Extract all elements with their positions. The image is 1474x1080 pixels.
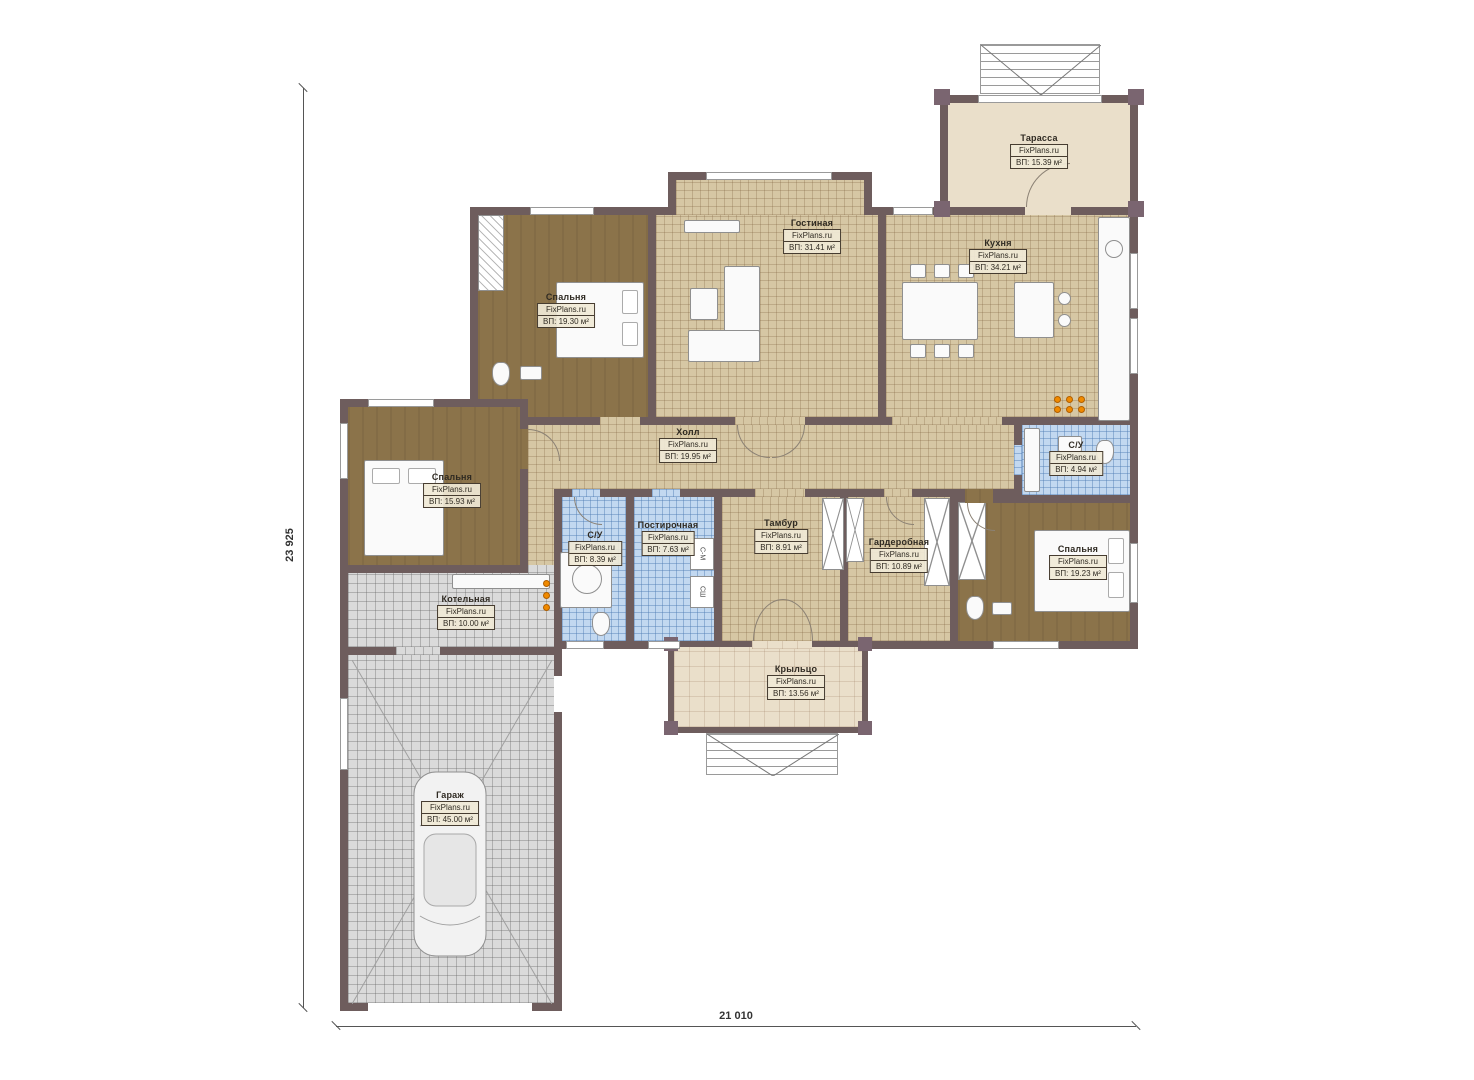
room-name: Гараж xyxy=(421,790,479,800)
room-label-terrace: Тарасса FixPlans.ru ВП: 15.39 м² xyxy=(1010,133,1068,170)
closet xyxy=(846,498,864,562)
window xyxy=(978,95,1102,103)
room-area: ВП: 8.91 м² xyxy=(755,542,807,553)
room-area: ВП: 19.23 м² xyxy=(1050,568,1106,579)
watermark: FixPlans.ru xyxy=(424,484,480,496)
room-hall xyxy=(520,417,1022,497)
window xyxy=(1130,253,1138,309)
watermark: FixPlans.ru xyxy=(1050,556,1106,568)
boiler-indicator xyxy=(543,592,550,599)
terrace-column xyxy=(934,89,950,105)
room-name: С/У xyxy=(568,530,622,540)
room-name: Спальня xyxy=(537,292,595,302)
laundry-door-opening xyxy=(652,489,680,497)
sink xyxy=(992,602,1012,615)
room-label-laundry: Постирочная FixPlans.ru ВП: 7.63 м² xyxy=(638,520,699,557)
watermark: FixPlans.ru xyxy=(569,542,621,554)
wardrobe-cabinet xyxy=(478,215,504,291)
room-name: Постирочная xyxy=(638,520,699,530)
stool xyxy=(1058,314,1071,327)
porch-column xyxy=(664,721,678,735)
closet xyxy=(822,498,844,570)
window xyxy=(648,641,680,649)
stairs-arrow xyxy=(981,45,1101,95)
room-area: ВП: 13.56 м² xyxy=(768,688,824,699)
room-area: ВП: 19.95 м² xyxy=(660,451,716,462)
window xyxy=(566,641,604,649)
room-area: ВП: 8.39 м² xyxy=(569,554,621,565)
stove-burner xyxy=(1054,396,1061,403)
kitchen-island xyxy=(1014,282,1054,338)
room-name: Спальня xyxy=(423,472,481,482)
dimension-width-label: 21 010 xyxy=(719,1010,753,1022)
watermark: FixPlans.ru xyxy=(784,230,840,242)
chair xyxy=(910,264,926,278)
garage-boiler-opening xyxy=(396,647,440,655)
window xyxy=(993,641,1059,649)
room-label-vestibule: Тамбур FixPlans.ru ВП: 8.91 м² xyxy=(754,518,808,555)
toilet xyxy=(592,612,610,636)
watermark: FixPlans.ru xyxy=(538,304,594,316)
bedroom-left-door-opening xyxy=(520,429,528,469)
dimension-height-label: 23 925 xyxy=(284,528,296,562)
porch-stairs xyxy=(706,733,838,775)
floor-plan-canvas: С-М СШ Тарасса FixPlans.ru ВП: 15.39 м² xyxy=(0,0,1474,1080)
terrace-stairs xyxy=(980,44,1100,94)
room-name: Тамбур xyxy=(754,518,808,528)
room-area: ВП: 34.21 м² xyxy=(970,262,1026,273)
garage-side-door-opening xyxy=(554,676,562,712)
stove-burner xyxy=(1078,406,1085,413)
watermark: FixPlans.ru xyxy=(1050,452,1102,464)
room-area: ВП: 19.30 м² xyxy=(538,316,594,327)
hall-corridor xyxy=(528,493,554,569)
stool xyxy=(1058,292,1071,305)
boiler-indicator xyxy=(543,604,550,611)
room-area: ВП: 10.00 м² xyxy=(438,618,494,629)
watermark: FixPlans.ru xyxy=(871,549,927,561)
pillow xyxy=(1108,538,1124,564)
room-name: Гостиная xyxy=(783,218,841,228)
room-label-garage: Гараж FixPlans.ru ВП: 45.00 м² xyxy=(421,790,479,827)
room-name: Гардеробная xyxy=(869,537,929,547)
room-label-bathroom-left: С/У FixPlans.ru ВП: 8.39 м² xyxy=(568,530,622,567)
room-area: ВП: 4.94 м² xyxy=(1050,464,1102,475)
porch-column xyxy=(858,721,872,735)
room-area: ВП: 15.39 м² xyxy=(1011,157,1067,168)
room-name: Котельная xyxy=(437,594,495,604)
window xyxy=(340,698,348,770)
room-label-hall: Холл FixPlans.ru ВП: 19.95 м² xyxy=(659,427,717,464)
dryer: СШ xyxy=(690,576,714,608)
room-area: ВП: 31.41 м² xyxy=(784,242,840,253)
watermark: FixPlans.ru xyxy=(970,250,1026,262)
watermark: FixPlans.ru xyxy=(1011,145,1067,157)
window xyxy=(368,399,434,407)
room-area: ВП: 15.93 м² xyxy=(424,496,480,507)
watermark: FixPlans.ru xyxy=(438,606,494,618)
terrace-column xyxy=(1128,89,1144,105)
room-name: Крыльцо xyxy=(767,664,825,674)
bedroom-top-door-opening xyxy=(600,417,640,425)
toilet xyxy=(492,362,510,386)
dining-table xyxy=(902,282,978,340)
boiler-door-opening xyxy=(528,565,554,573)
room-name: Кухня xyxy=(969,238,1027,248)
stove-burner xyxy=(1054,406,1061,413)
tv-cabinet xyxy=(684,220,740,233)
coffee-table xyxy=(690,288,718,320)
corridor-top-opening xyxy=(528,489,554,497)
entrance-door-opening xyxy=(752,641,812,649)
watermark: FixPlans.ru xyxy=(642,532,694,544)
toilet xyxy=(966,596,984,620)
terrace-column xyxy=(934,201,950,217)
stove-burner xyxy=(1078,396,1085,403)
room-label-bedroom-right: Спальня FixPlans.ru ВП: 19.23 м² xyxy=(1049,544,1107,581)
room-name: Холл xyxy=(659,427,717,437)
bedroom-right-door-opening xyxy=(965,489,993,503)
chair xyxy=(934,344,950,358)
chair xyxy=(910,344,926,358)
watermark: FixPlans.ru xyxy=(422,802,478,814)
room-label-bathroom-right: С/У FixPlans.ru ВП: 4.94 м² xyxy=(1049,440,1103,477)
room-area: ВП: 45.00 м² xyxy=(422,814,478,825)
dimension-line-vertical xyxy=(303,88,304,1008)
window xyxy=(1130,318,1138,374)
porch-column xyxy=(858,637,872,651)
boiler-indicator xyxy=(543,580,550,587)
room-label-bedroom-top: Спальня FixPlans.ru ВП: 19.30 м² xyxy=(537,292,595,329)
room-label-bedroom-left: Спальня FixPlans.ru ВП: 15.93 м² xyxy=(423,472,481,509)
watermark: FixPlans.ru xyxy=(660,439,716,451)
room-name: С/У xyxy=(1049,440,1103,450)
stove-burner xyxy=(1066,406,1073,413)
window xyxy=(1130,543,1138,603)
room-label-kitchen: Кухня FixPlans.ru ВП: 34.21 м² xyxy=(969,238,1027,275)
terrace-column xyxy=(1128,201,1144,217)
boiler-counter xyxy=(452,574,550,589)
closet-x-icon xyxy=(847,499,863,561)
watermark: FixPlans.ru xyxy=(755,530,807,542)
window xyxy=(530,207,594,215)
stove-burner xyxy=(1066,396,1073,403)
shower-drain xyxy=(572,564,602,594)
living-hall-opening xyxy=(735,417,805,425)
chair xyxy=(958,344,974,358)
pillow xyxy=(622,322,638,346)
window xyxy=(893,207,933,215)
room-label-boiler: Котельная FixPlans.ru ВП: 10.00 м² xyxy=(437,594,495,631)
room-area: ВП: 10.89 м² xyxy=(871,561,927,572)
room-living xyxy=(648,207,886,425)
watermark: FixPlans.ru xyxy=(768,676,824,688)
stairs-arrow xyxy=(707,734,839,776)
garage-gate-opening xyxy=(368,1003,532,1011)
bathroom-left-door-opening xyxy=(572,489,600,497)
sofa xyxy=(688,330,760,362)
terrace-door-opening xyxy=(1025,207,1071,215)
dimension-line-horizontal xyxy=(336,1026,1136,1027)
vestibule-door-opening xyxy=(755,489,805,497)
room-label-living: Гостиная FixPlans.ru ВП: 31.41 м² xyxy=(783,218,841,255)
wardrobe-door-opening xyxy=(884,489,912,497)
room-name: Тарасса xyxy=(1010,133,1068,143)
room-label-wardrobe: Гардеробная FixPlans.ru ВП: 10.89 м² xyxy=(869,537,929,574)
room-area: ВП: 7.63 м² xyxy=(642,544,694,555)
kitchen-hall-opening xyxy=(892,417,1002,425)
sink xyxy=(520,366,542,380)
room-name: Спальня xyxy=(1049,544,1107,554)
window xyxy=(706,172,832,180)
chair xyxy=(934,264,950,278)
bathroom-right-door-opening xyxy=(1014,445,1022,475)
pillow xyxy=(622,290,638,314)
pillow xyxy=(1108,572,1124,598)
window xyxy=(340,423,348,479)
pillow xyxy=(372,468,400,484)
closet-x-icon xyxy=(823,499,843,569)
room-label-porch: Крыльцо FixPlans.ru ВП: 13.56 м² xyxy=(767,664,825,701)
bathtub xyxy=(1024,428,1040,492)
kitchen-sink xyxy=(1105,240,1123,258)
